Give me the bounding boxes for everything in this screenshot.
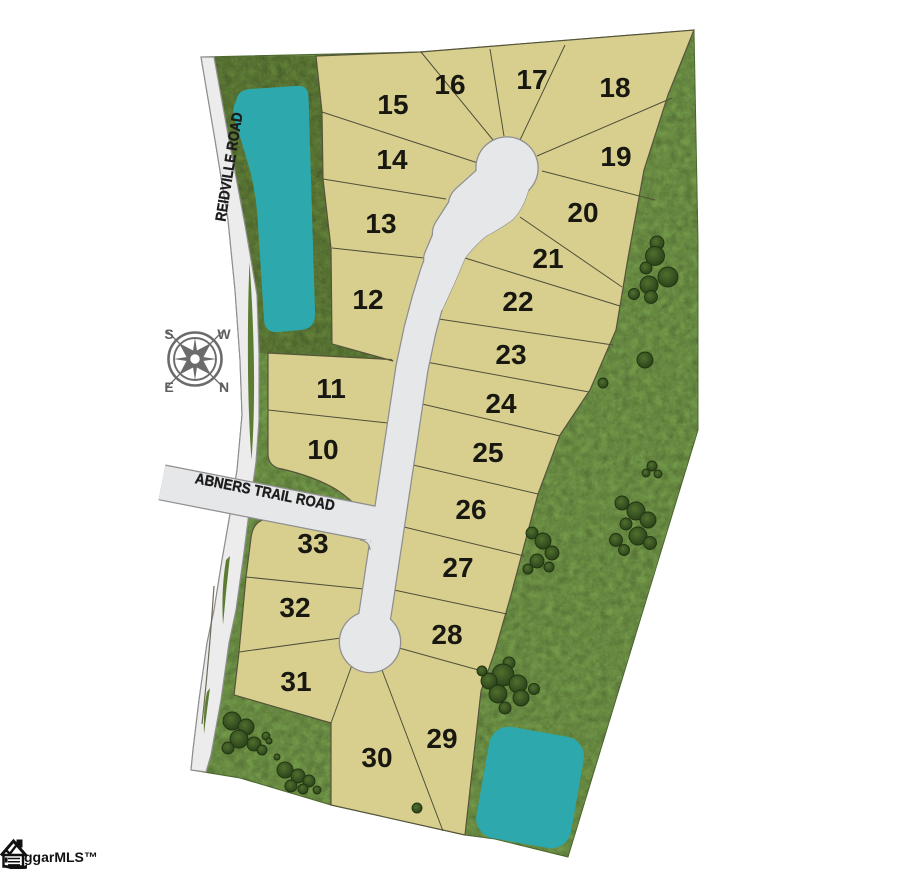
svg-text:10: 10 — [307, 434, 338, 465]
svg-text:13: 13 — [365, 208, 396, 239]
svg-text:14: 14 — [376, 144, 408, 175]
svg-text:11: 11 — [316, 373, 346, 404]
svg-text:28: 28 — [431, 619, 462, 650]
svg-text:20: 20 — [567, 197, 598, 228]
svg-text:27: 27 — [442, 552, 473, 583]
svg-text:19: 19 — [600, 141, 631, 172]
svg-text:32: 32 — [279, 592, 310, 623]
svg-text:W: W — [217, 326, 231, 342]
svg-text:N: N — [219, 379, 229, 395]
svg-text:33: 33 — [297, 528, 328, 559]
svg-text:23: 23 — [495, 339, 526, 370]
svg-text:31: 31 — [280, 666, 311, 697]
svg-text:ggarMLS™: ggarMLS™ — [24, 849, 98, 865]
svg-text:E: E — [164, 379, 173, 395]
svg-text:30: 30 — [361, 742, 392, 773]
svg-text:26: 26 — [455, 494, 486, 525]
svg-text:16: 16 — [434, 69, 465, 100]
svg-text:29: 29 — [426, 723, 457, 754]
svg-text:12: 12 — [352, 284, 383, 315]
svg-text:22: 22 — [502, 286, 533, 317]
svg-text:24: 24 — [485, 388, 517, 419]
svg-text:S: S — [164, 326, 173, 342]
svg-text:17: 17 — [516, 64, 547, 95]
svg-text:25: 25 — [472, 437, 503, 468]
svg-text:21: 21 — [532, 243, 563, 274]
svg-text:18: 18 — [599, 72, 630, 103]
svg-text:15: 15 — [377, 89, 408, 120]
